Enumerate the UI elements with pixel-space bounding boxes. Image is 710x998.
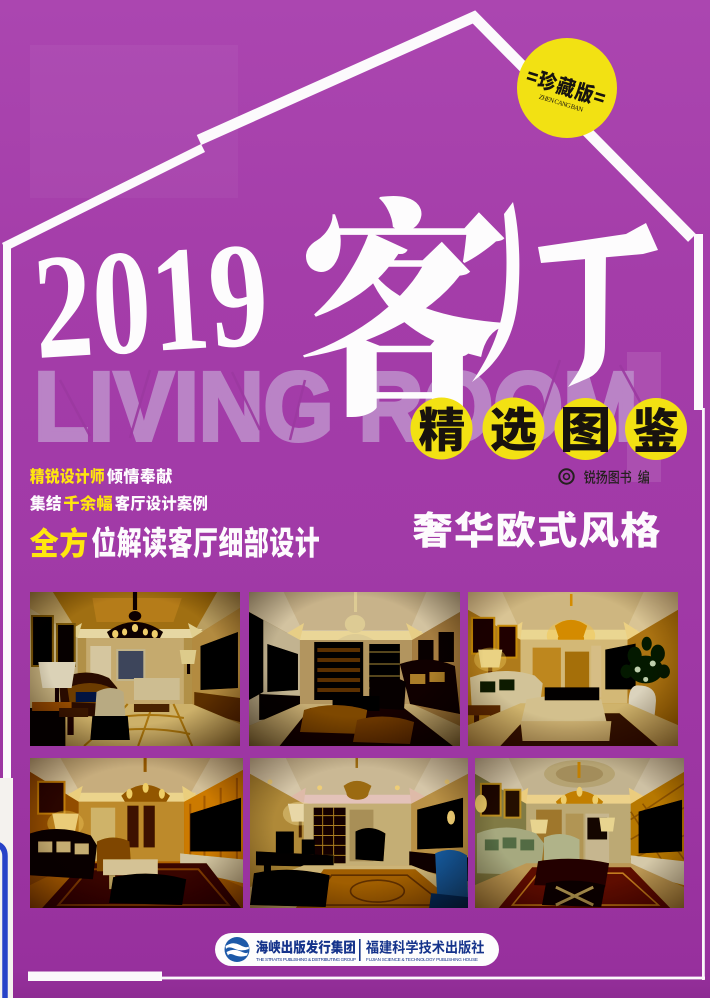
svg-text:THE STRAITS PUBLISHING & DISTR: THE STRAITS PUBLISHING & DISTRIBUTING GR… [256, 957, 356, 962]
svg-text:FUJIAN SCIENCE & TECHNOLOGY PU: FUJIAN SCIENCE & TECHNOLOGY PUBLISHING H… [366, 957, 478, 962]
